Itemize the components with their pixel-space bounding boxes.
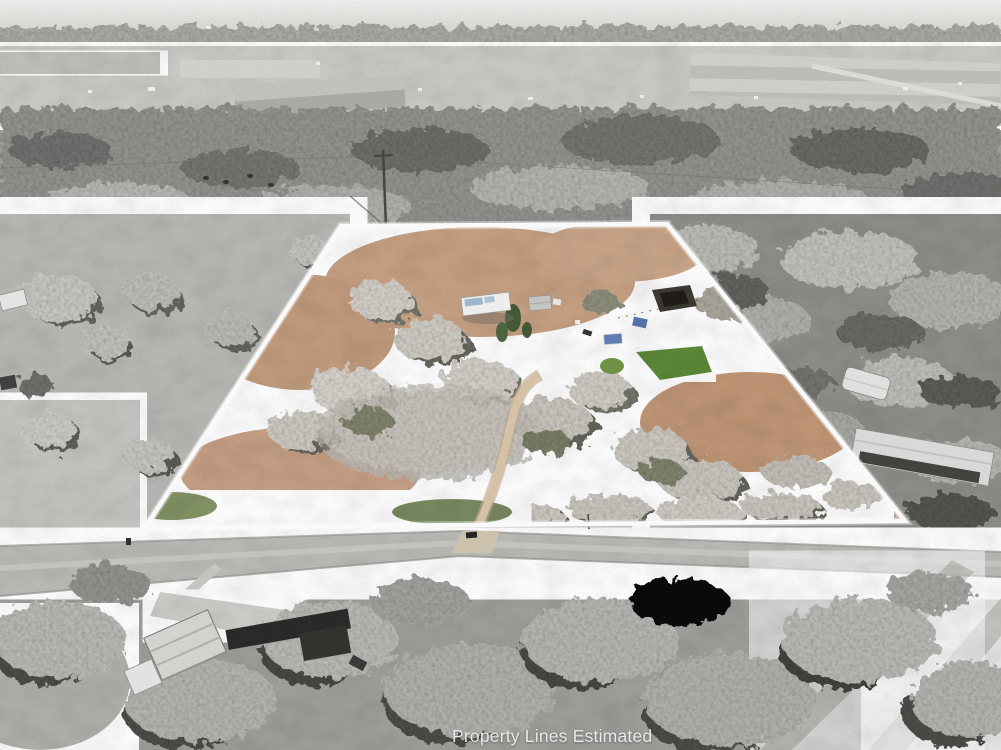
aerial-photo: Property Lines Estimated — [0, 0, 1001, 750]
aerial-photo-scene — [0, 0, 1001, 750]
property-lines-disclaimer: Property Lines Estimated — [452, 726, 652, 747]
film-grain-light — [0, 0, 1001, 750]
